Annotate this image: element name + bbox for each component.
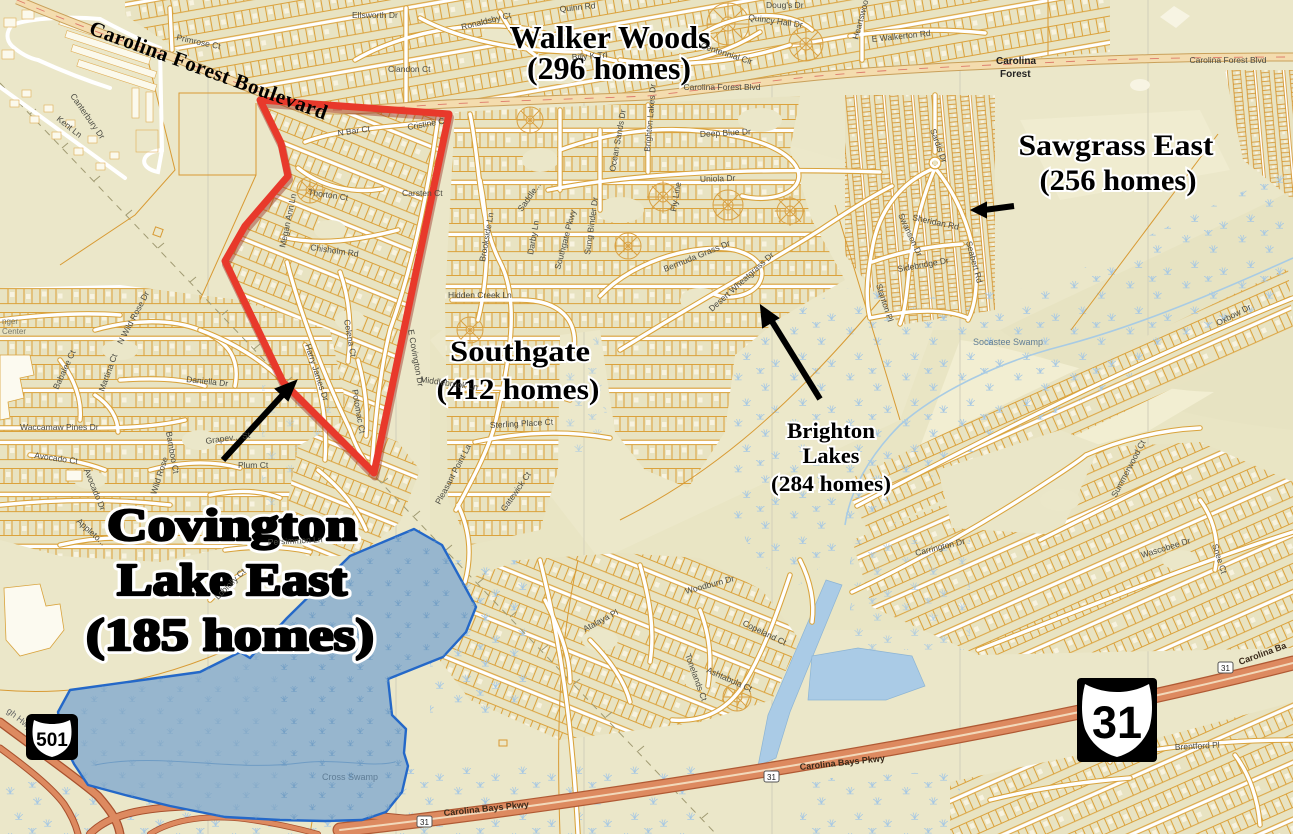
svg-text:Waccamaw Pines Dr: Waccamaw Pines Dr [20,422,99,432]
svg-text:Uniola Dr: Uniola Dr [700,173,736,184]
svg-text:Cross Swamp: Cross Swamp [322,772,378,782]
svg-text:(256 homes): (256 homes) [1040,164,1197,197]
svg-text:31: 31 [1092,697,1142,748]
svg-text:Sawgrass East: Sawgrass East [1019,129,1214,162]
svg-text:Hidden Creek Ln: Hidden Creek Ln [448,290,512,300]
svg-text:31: 31 [767,773,776,782]
svg-text:Doug's Dr: Doug's Dr [766,0,804,10]
svg-text:Carolina: Carolina [996,56,1036,67]
svg-text:31: 31 [1221,664,1230,673]
svg-text:Forest: Forest [1000,69,1031,80]
svg-text:Ellsworth Dr: Ellsworth Dr [352,10,398,20]
svg-text:(185 homes): (185 homes) [86,610,374,660]
svg-text:Brighton: Brighton [787,418,875,443]
svg-text:(296 homes): (296 homes) [527,50,691,86]
svg-text:Center: Center [2,327,26,336]
svg-text:nger: nger [2,317,18,326]
svg-text:Lakes: Lakes [803,443,860,468]
svg-text:Southgate: Southgate [450,335,590,368]
svg-text:Socastee Swamp: Socastee Swamp [973,337,1043,347]
svg-text:Clandon Ct: Clandon Ct [388,64,431,74]
svg-text:Carolina Forest Blvd: Carolina Forest Blvd [683,82,760,92]
svg-text:Carolina Forest Blvd: Carolina Forest Blvd [1189,55,1266,65]
svg-text:Plum Ct: Plum Ct [238,460,269,470]
svg-text:Carsten Ct: Carsten Ct [402,188,443,198]
svg-text:501: 501 [36,730,68,751]
svg-text:(284 homes): (284 homes) [771,471,891,496]
svg-text:31: 31 [420,818,429,827]
